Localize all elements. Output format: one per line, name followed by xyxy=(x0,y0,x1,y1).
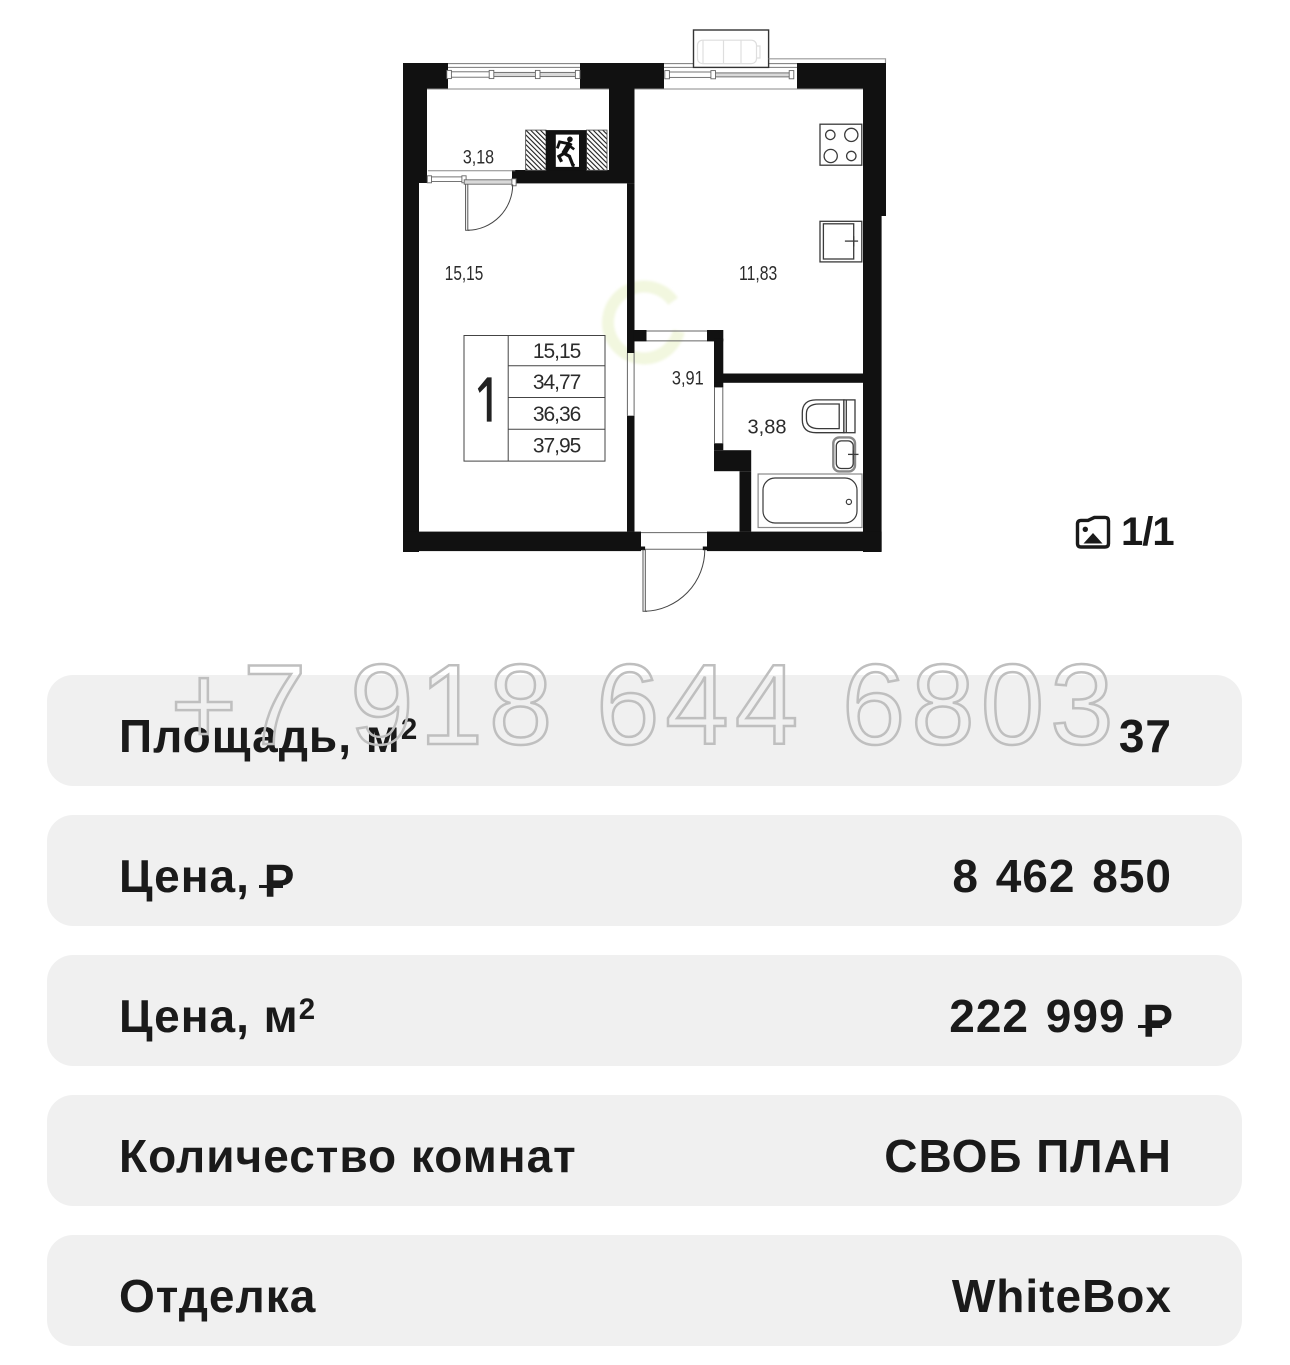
svg-text:15,15: 15,15 xyxy=(445,263,484,285)
svg-text:34,77: 34,77 xyxy=(533,371,581,394)
svg-text:3,88: 3,88 xyxy=(748,416,787,438)
svg-text:11,83: 11,83 xyxy=(739,263,777,285)
svg-text:3,91: 3,91 xyxy=(672,369,704,390)
svg-text:36,36: 36,36 xyxy=(533,403,581,426)
svg-text:37,95: 37,95 xyxy=(533,435,581,458)
svg-text:3,18: 3,18 xyxy=(463,148,494,169)
svg-text:15,15: 15,15 xyxy=(533,340,581,363)
